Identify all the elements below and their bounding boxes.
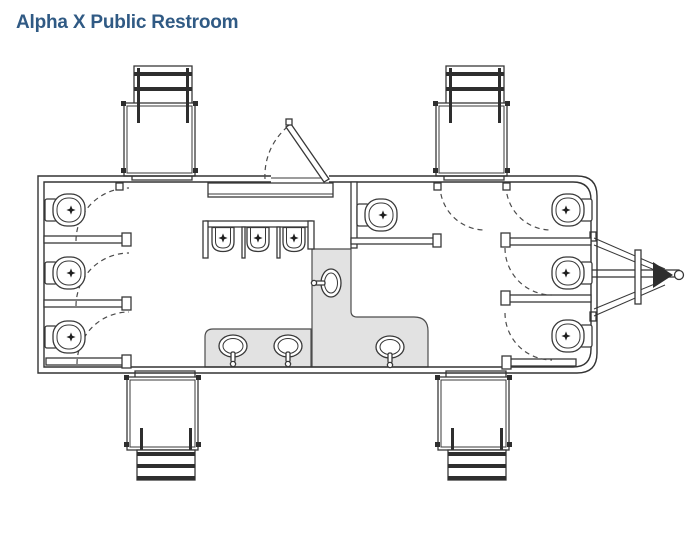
room-divider-wall bbox=[308, 221, 314, 249]
stall-partition bbox=[44, 300, 130, 307]
door-swing-arc bbox=[505, 313, 552, 360]
door-swing-arc bbox=[505, 248, 552, 295]
floor-plan bbox=[0, 0, 700, 541]
urinal bbox=[283, 228, 305, 252]
toilet bbox=[552, 194, 592, 226]
stall-partition bbox=[505, 238, 591, 245]
door-hinge-marker bbox=[503, 183, 510, 190]
toilet bbox=[552, 320, 592, 352]
toilet bbox=[45, 257, 85, 289]
door-hinge-marker bbox=[434, 183, 441, 190]
toilet bbox=[45, 194, 85, 226]
stall-partition bbox=[505, 295, 591, 302]
tongue-hitch bbox=[590, 232, 684, 321]
urinal-divider bbox=[242, 227, 245, 258]
door-swing-arc bbox=[265, 124, 291, 179]
urinal bbox=[247, 228, 269, 252]
stall-partition bbox=[46, 358, 130, 365]
floor-plan-page: Alpha X Public Restroom bbox=[0, 0, 700, 541]
staircase-top-left bbox=[121, 66, 198, 180]
privacy-screen bbox=[203, 221, 208, 258]
toilet bbox=[357, 199, 397, 231]
toilet bbox=[552, 257, 592, 289]
door-swing-arc bbox=[440, 185, 485, 230]
staircase-bottom-right bbox=[435, 371, 512, 480]
staircase-top-right bbox=[433, 66, 510, 180]
door-hinge-marker bbox=[116, 183, 123, 190]
urinal-wall bbox=[206, 221, 312, 227]
vestibule-wall bbox=[208, 183, 333, 197]
stall-partition bbox=[506, 359, 576, 366]
staircase-bottom-left bbox=[124, 371, 201, 480]
stall-partition bbox=[351, 238, 440, 244]
urinal-divider bbox=[277, 227, 280, 258]
toilet bbox=[45, 321, 85, 353]
stall-partition bbox=[44, 236, 130, 243]
sink-counter-center bbox=[312, 249, 428, 367]
entry-door-leaf bbox=[286, 124, 329, 182]
door-swing-arc bbox=[506, 185, 551, 230]
urinal bbox=[212, 228, 234, 252]
